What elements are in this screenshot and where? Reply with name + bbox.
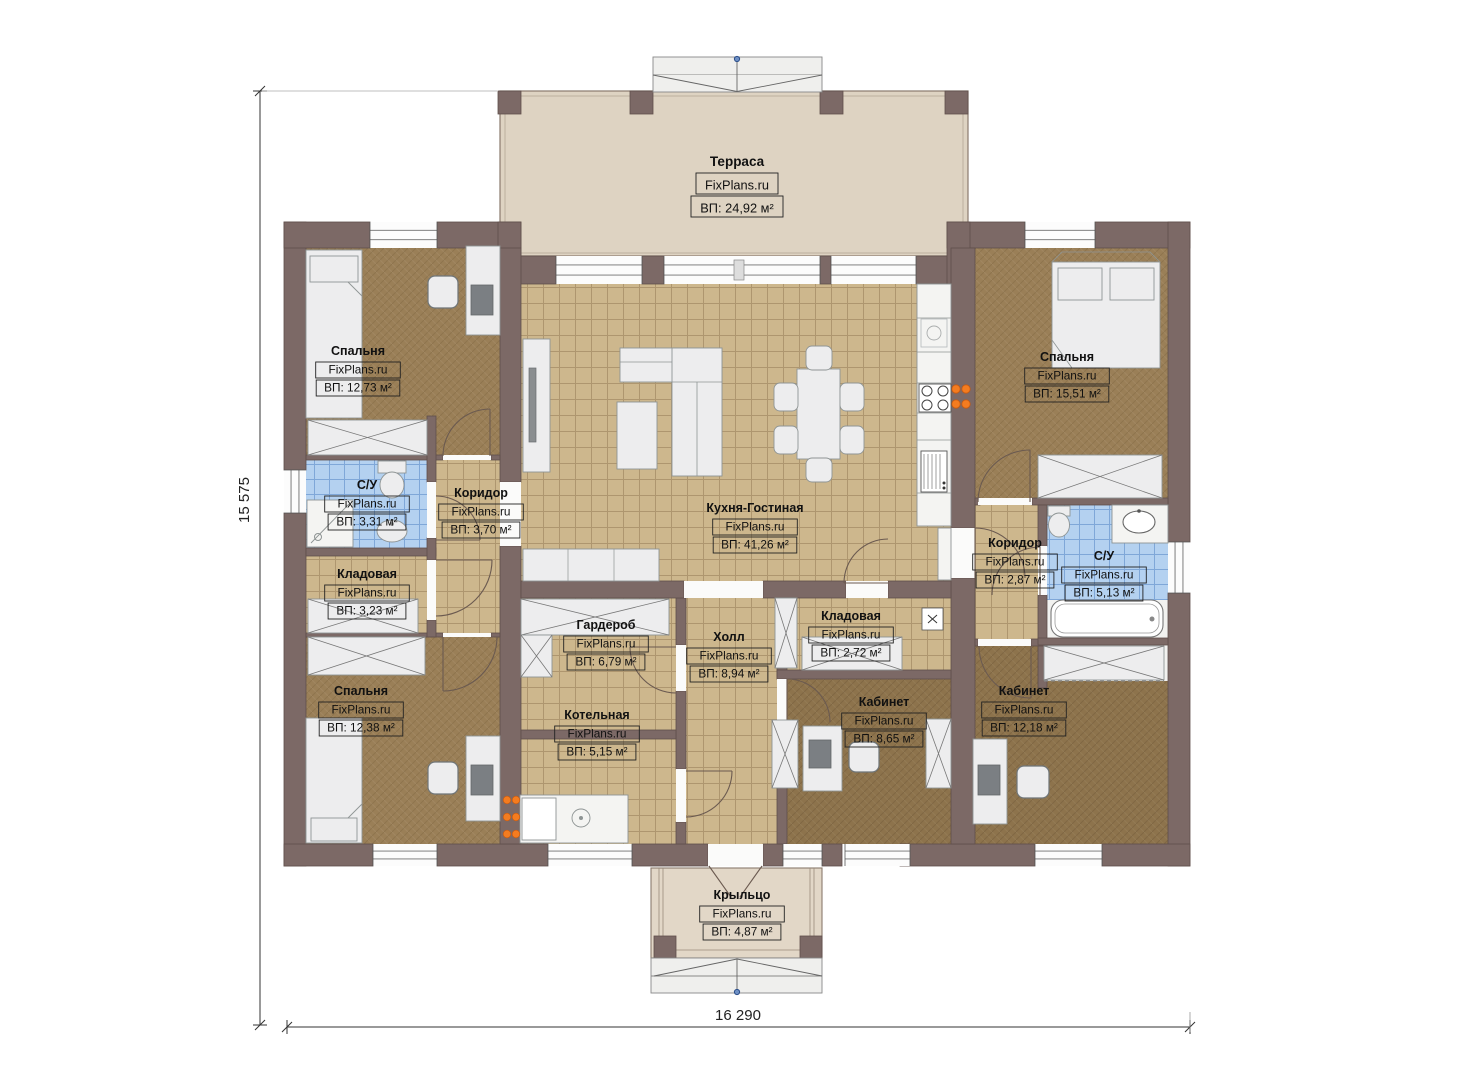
svg-text:FixPlans.ru: FixPlans.ru — [994, 703, 1053, 717]
svg-text:ВП: 4,87 м²: ВП: 4,87 м² — [711, 925, 772, 939]
svg-text:Гардероб: Гардероб — [576, 618, 635, 632]
svg-text:Кладовая: Кладовая — [821, 609, 881, 623]
svg-text:FixPlans.ru: FixPlans.ru — [331, 703, 390, 717]
svg-text:С/У: С/У — [1094, 549, 1115, 563]
svg-text:Спальня: Спальня — [1040, 350, 1094, 364]
svg-text:Кладовая: Кладовая — [337, 567, 397, 581]
svg-text:FixPlans.ru: FixPlans.ru — [985, 555, 1044, 569]
svg-text:ВП: 6,79 м²: ВП: 6,79 м² — [575, 655, 636, 669]
svg-text:FixPlans.ru: FixPlans.ru — [854, 714, 913, 728]
svg-text:ВП: 12,38 м²: ВП: 12,38 м² — [327, 721, 395, 735]
svg-text:FixPlans.ru: FixPlans.ru — [337, 586, 396, 600]
svg-text:FixPlans.ru: FixPlans.ru — [1074, 568, 1133, 582]
svg-text:FixPlans.ru: FixPlans.ru — [451, 505, 510, 519]
svg-text:Спальня: Спальня — [331, 344, 385, 358]
svg-text:FixPlans.ru: FixPlans.ru — [1037, 369, 1096, 383]
svg-text:16 290: 16 290 — [715, 1007, 761, 1024]
svg-text:С/У: С/У — [357, 478, 378, 492]
svg-text:Крыльцо: Крыльцо — [714, 888, 771, 902]
svg-text:Кабинет: Кабинет — [859, 695, 910, 709]
svg-text:Холл: Холл — [713, 630, 744, 644]
svg-text:FixPlans.ru: FixPlans.ru — [567, 727, 626, 741]
svg-text:Кухня-Гостиная: Кухня-Гостиная — [706, 501, 803, 515]
svg-text:ВП: 5,13 м²: ВП: 5,13 м² — [1073, 586, 1134, 600]
svg-text:FixPlans.ru: FixPlans.ru — [705, 178, 769, 193]
svg-text:ВП: 3,70 м²: ВП: 3,70 м² — [450, 523, 511, 537]
svg-text:ВП: 12,73 м²: ВП: 12,73 м² — [324, 381, 392, 395]
svg-text:FixPlans.ru: FixPlans.ru — [328, 363, 387, 377]
svg-text:ВП: 3,23 м²: ВП: 3,23 м² — [336, 604, 397, 618]
svg-text:FixPlans.ru: FixPlans.ru — [712, 907, 771, 921]
svg-text:ВП: 15,51 м²: ВП: 15,51 м² — [1033, 387, 1101, 401]
svg-text:FixPlans.ru: FixPlans.ru — [821, 628, 880, 642]
svg-text:ВП: 24,92 м²: ВП: 24,92 м² — [700, 201, 774, 216]
svg-text:FixPlans.ru: FixPlans.ru — [337, 497, 396, 511]
svg-text:Кабинет: Кабинет — [999, 684, 1050, 698]
svg-text:FixPlans.ru: FixPlans.ru — [576, 637, 635, 651]
svg-text:ВП: 5,15 м²: ВП: 5,15 м² — [566, 745, 627, 759]
svg-text:ВП: 41,26 м²: ВП: 41,26 м² — [721, 538, 789, 552]
svg-text:ВП: 3,31 м²: ВП: 3,31 м² — [336, 515, 397, 529]
svg-text:Коридор: Коридор — [454, 486, 508, 500]
svg-text:ВП: 2,87 м²: ВП: 2,87 м² — [984, 573, 1045, 587]
svg-text:ВП: 8,65 м²: ВП: 8,65 м² — [853, 732, 914, 746]
svg-text:FixPlans.ru: FixPlans.ru — [699, 649, 758, 663]
svg-text:Терраса: Терраса — [710, 154, 765, 169]
svg-text:ВП: 2,72 м²: ВП: 2,72 м² — [820, 646, 881, 660]
svg-text:ВП: 8,94 м²: ВП: 8,94 м² — [698, 667, 759, 681]
svg-text:ВП: 12,18 м²: ВП: 12,18 м² — [990, 721, 1058, 735]
svg-text:Спальня: Спальня — [334, 684, 388, 698]
svg-text:FixPlans.ru: FixPlans.ru — [725, 520, 784, 534]
svg-text:15 575: 15 575 — [236, 477, 253, 523]
svg-text:Коридор: Коридор — [988, 536, 1042, 550]
svg-text:Котельная: Котельная — [564, 708, 629, 722]
